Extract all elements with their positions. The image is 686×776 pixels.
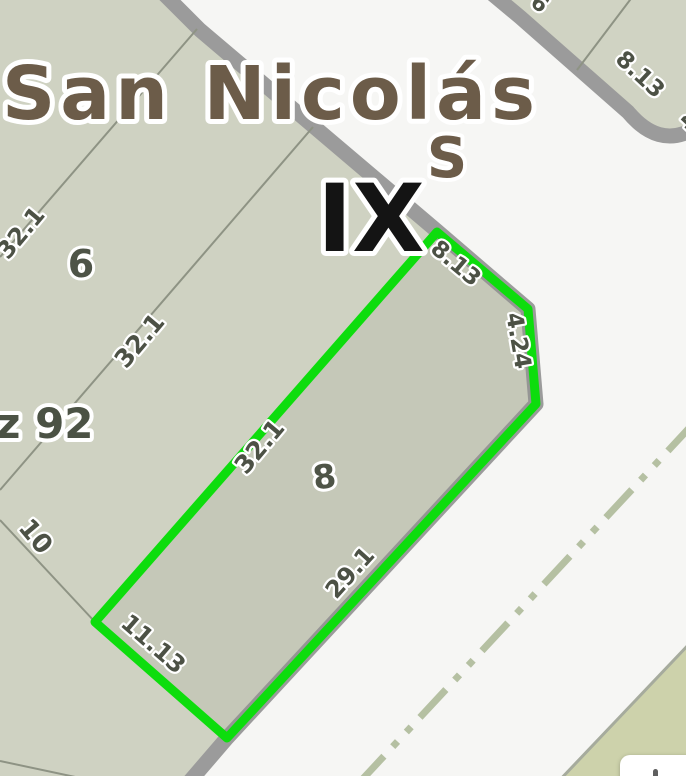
- street-name-label: San Nicolás: [2, 51, 540, 137]
- block-label: z 92: [0, 399, 94, 448]
- marker-icon: [653, 769, 658, 776]
- map-control-button[interactable]: [620, 755, 686, 776]
- street-initial-label: S: [427, 126, 467, 191]
- map-canvas[interactable]: San Nicolás S IX z 92 6 8 10 32.1 32.1 3…: [0, 0, 686, 776]
- zone-label: IX: [317, 165, 424, 274]
- parcel-6-label: 6: [68, 242, 94, 286]
